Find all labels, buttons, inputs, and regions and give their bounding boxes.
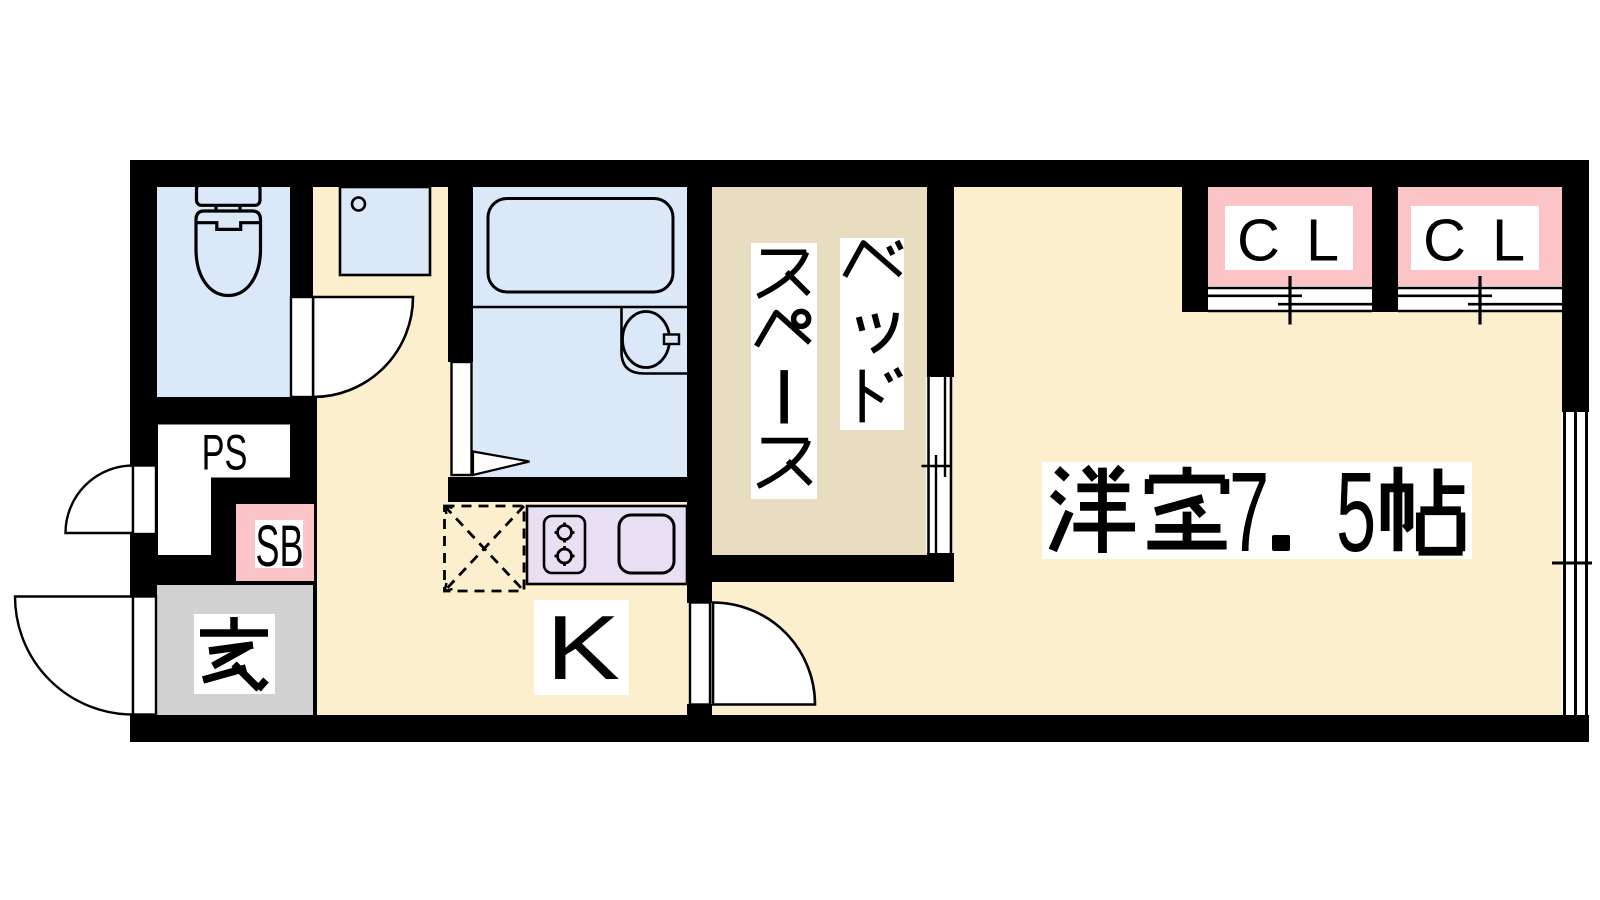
- svg-text:PS: PS: [202, 425, 248, 481]
- svg-text:K: K: [546, 597, 620, 699]
- svg-text:C: C: [1237, 207, 1280, 274]
- svg-text:C: C: [1423, 207, 1466, 274]
- svg-text:L: L: [1492, 207, 1525, 274]
- svg-text:SB: SB: [256, 514, 304, 579]
- svg-text:5: 5: [1336, 450, 1376, 576]
- svg-text:L: L: [1306, 207, 1339, 274]
- svg-text:7: 7: [1229, 450, 1269, 576]
